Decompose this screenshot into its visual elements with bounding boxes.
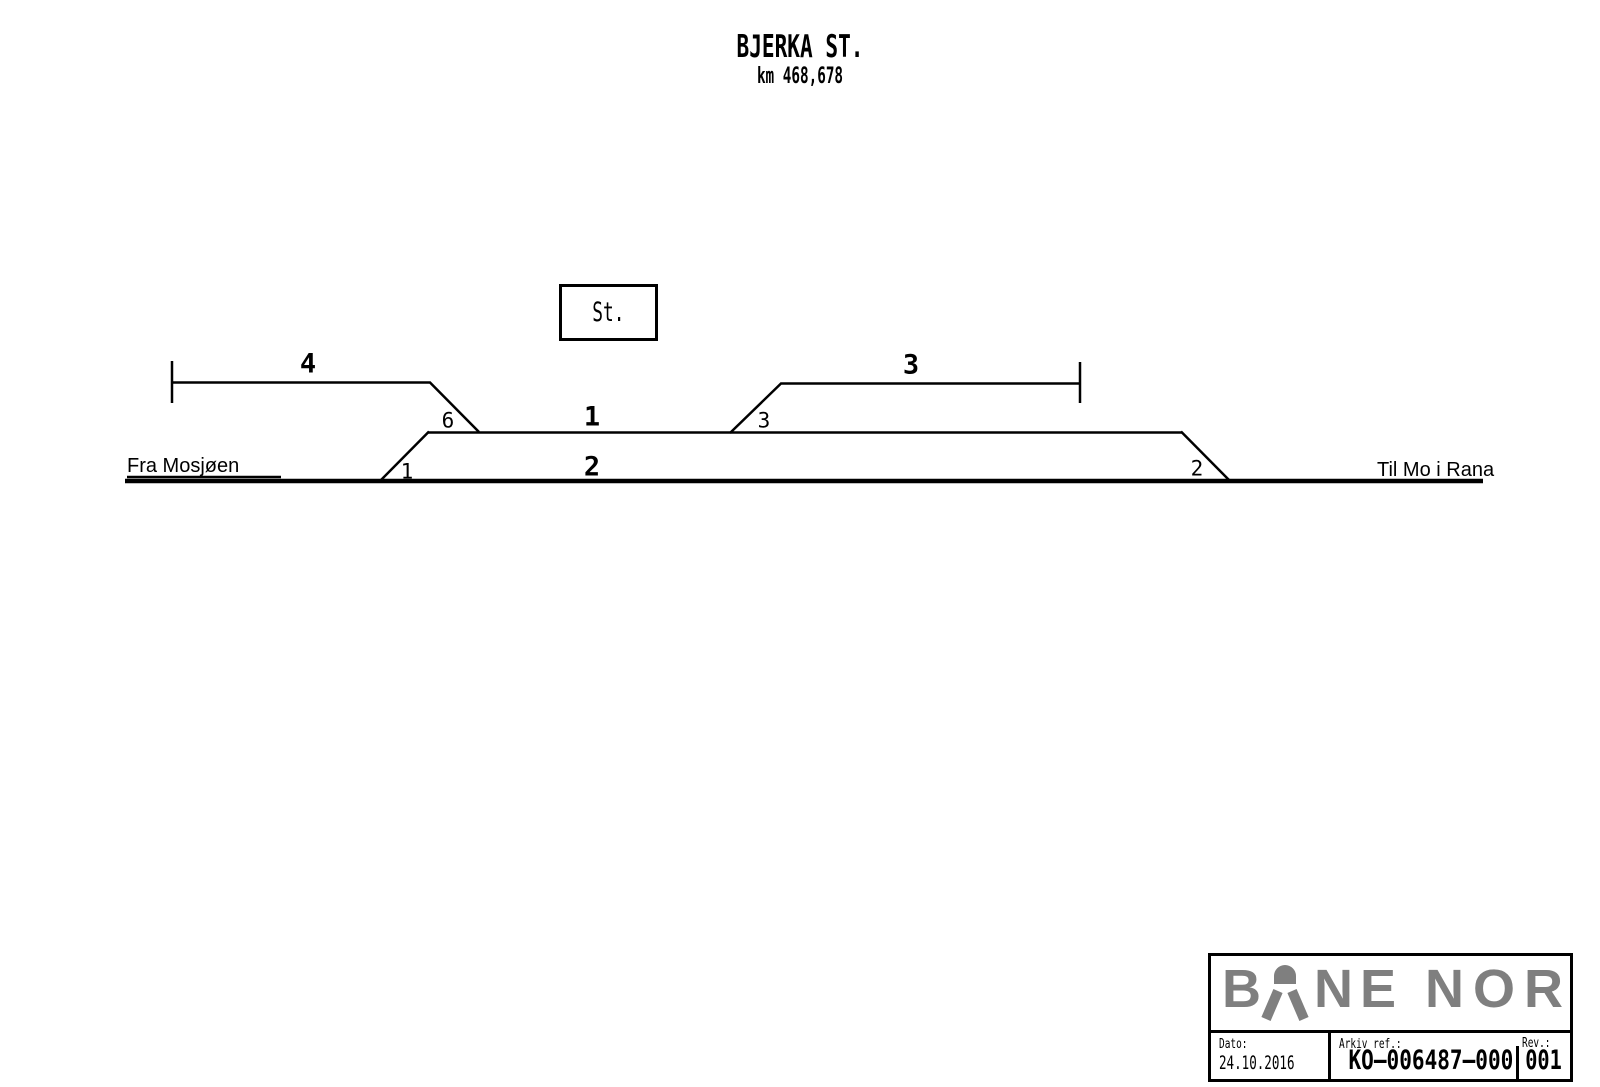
track-4-line xyxy=(172,383,479,433)
title-block: B NE NOR Dato: 24.10.2016 Arkiv ref.: KO… xyxy=(1208,953,1573,1082)
from-direction-label: Fra Mosjøen xyxy=(127,456,239,476)
banenor-logo: B NE NOR xyxy=(1211,956,1570,1033)
logo-dome-icon xyxy=(1274,965,1296,984)
logo-left-rail-icon xyxy=(1266,991,1278,1019)
track-4-label: 4 xyxy=(300,351,316,378)
revision-separator xyxy=(1516,1046,1519,1079)
title-block-fields: Dato: 24.10.2016 Arkiv ref.: KO–006487–0… xyxy=(1211,1033,1570,1079)
logo-text-b: B xyxy=(1222,959,1261,1019)
date-cell: Dato: 24.10.2016 xyxy=(1211,1033,1331,1079)
switch-1-label: 1 xyxy=(401,462,414,483)
logo-right-rail-icon xyxy=(1292,991,1304,1019)
archive-ref-value: KO–006487–000 xyxy=(1348,1045,1513,1076)
date-label: Dato: xyxy=(1219,1036,1247,1052)
logo-text-nor: NOR xyxy=(1425,959,1572,1019)
switch-3-label: 3 xyxy=(758,411,771,432)
station-box: St. xyxy=(559,284,658,341)
switch-6-label: 6 xyxy=(442,411,455,432)
switch-2-label: 2 xyxy=(1191,459,1204,480)
switch-2-line xyxy=(1181,432,1230,482)
logo-text-ne: NE xyxy=(1314,959,1403,1019)
track-1-label: 1 xyxy=(584,404,600,431)
to-direction-label: Til Mo i Rana xyxy=(1377,460,1494,480)
archive-ref-cell: Arkiv ref.: KO–006487–000 xyxy=(1331,1033,1517,1079)
track-3-line xyxy=(730,384,1080,434)
date-value: 24.10.2016 xyxy=(1219,1052,1294,1074)
track-2-label: 2 xyxy=(584,454,600,481)
track-plan-drawing: BJERKA ST. km 468,678 St. 1 2 3 4 6 3 1 … xyxy=(0,0,1600,1087)
track-3-label: 3 xyxy=(903,352,919,379)
track-schematic xyxy=(0,0,1600,1087)
revision-value: 001 xyxy=(1524,1045,1564,1076)
station-box-label: St. xyxy=(592,297,624,328)
banenor-logo-graphic: B NE NOR xyxy=(1222,957,1567,1029)
revision-cell: Rev.: 001 xyxy=(1517,1033,1570,1079)
